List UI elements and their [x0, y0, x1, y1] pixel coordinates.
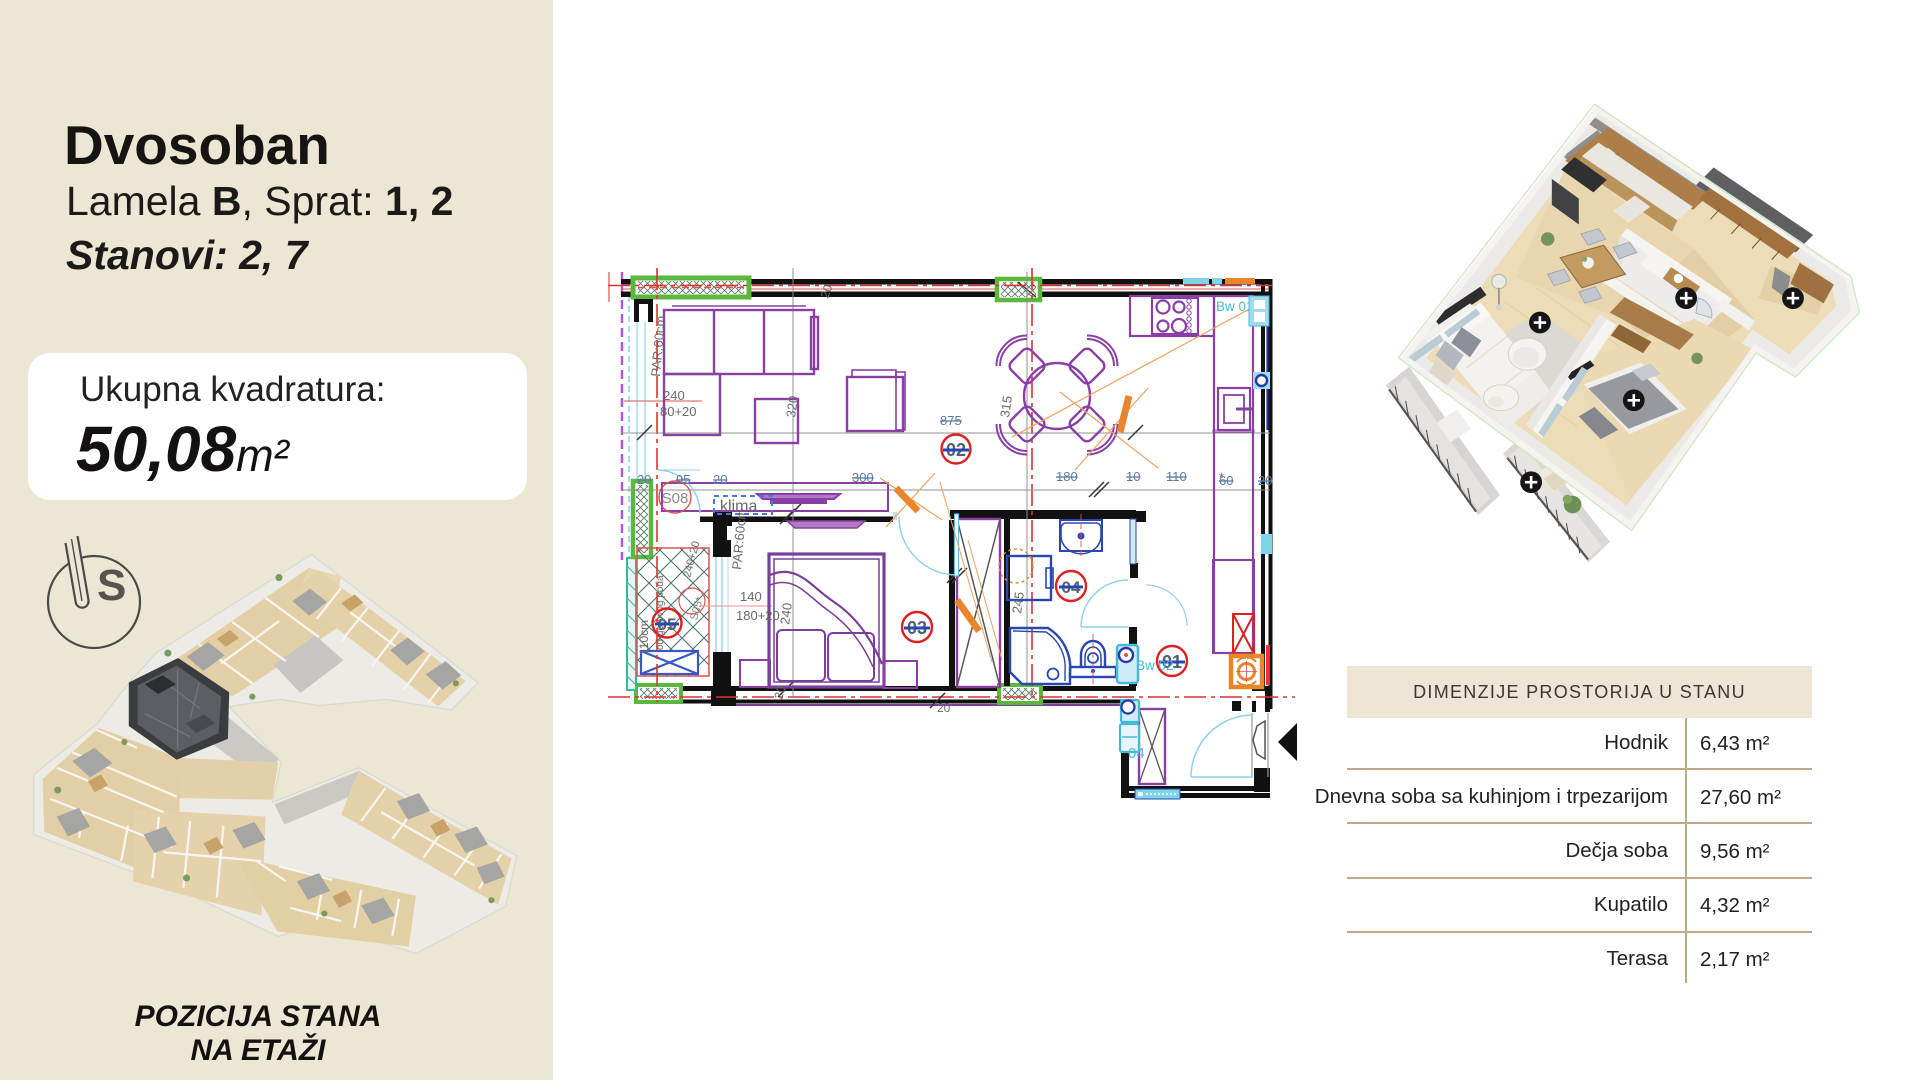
svg-text:180: 180: [1056, 469, 1078, 484]
svg-text:Bw 01: Bw 01: [1216, 299, 1254, 314]
svg-text:320: 320: [783, 395, 801, 419]
svg-text:110: 110: [1166, 469, 1187, 484]
svg-text:Bw 02: Bw 02: [1136, 658, 1174, 673]
svg-text:240: 240: [777, 602, 795, 626]
svg-text:110cm: 110cm: [637, 620, 651, 655]
svg-text:S08: S08: [662, 490, 689, 507]
svg-text:20: 20: [937, 701, 951, 715]
svg-text:klima: klima: [720, 498, 757, 515]
svg-text:80+20: 80+20: [660, 404, 697, 419]
svg-text:PAR:60cm: PAR:60cm: [648, 315, 668, 377]
svg-text:140: 140: [740, 589, 762, 604]
svg-text:245: 245: [1009, 591, 1027, 615]
svg-text:180+20: 180+20: [736, 608, 780, 623]
svg-text:04: 04: [1128, 745, 1145, 762]
svg-text:20: 20: [637, 472, 651, 487]
svg-text:240: 240: [663, 388, 685, 403]
svg-text:10: 10: [1126, 469, 1140, 484]
svg-text:95: 95: [676, 472, 690, 487]
svg-text:300: 300: [852, 470, 874, 485]
svg-text:20: 20: [1258, 473, 1272, 488]
svg-text:875: 875: [940, 413, 962, 428]
svg-text:60: 60: [1219, 473, 1233, 488]
svg-text:20: 20: [713, 472, 727, 487]
svg-text:315: 315: [997, 395, 1015, 419]
